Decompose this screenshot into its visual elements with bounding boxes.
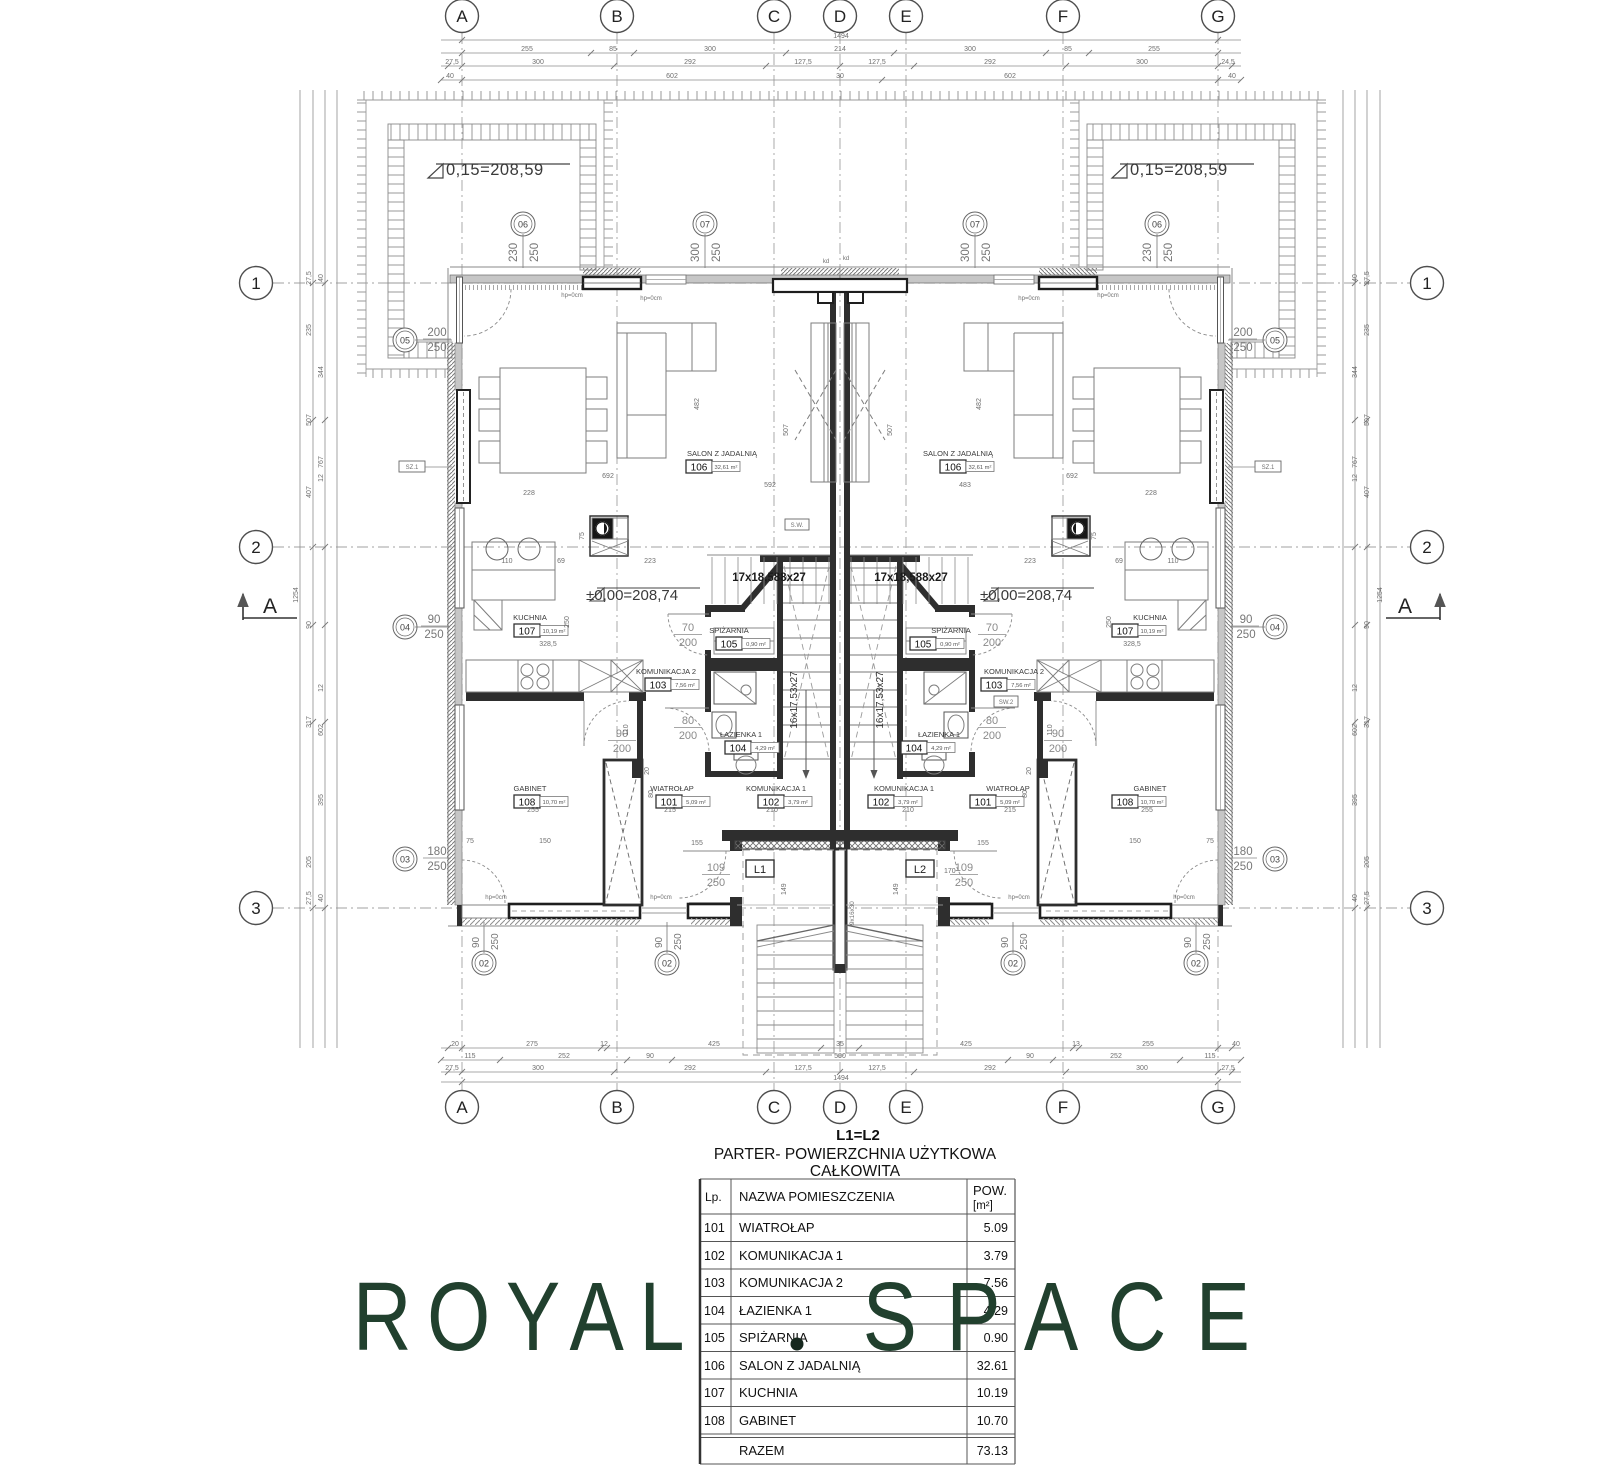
svg-text:255: 255 — [1142, 1041, 1154, 1048]
svg-text:155: 155 — [691, 840, 703, 847]
svg-text:250: 250 — [490, 933, 501, 950]
svg-text:4,29 m²: 4,29 m² — [931, 746, 951, 752]
svg-text:692: 692 — [1066, 473, 1078, 480]
svg-text:75: 75 — [466, 838, 474, 845]
svg-text:KOMUNIKACJA 2: KOMUNIKACJA 2 — [636, 667, 696, 676]
svg-text:10.19: 10.19 — [977, 1386, 1008, 1400]
svg-text:hp=0cm: hp=0cm — [561, 293, 583, 299]
svg-text:02: 02 — [1191, 959, 1201, 969]
svg-text:32,61 m²: 32,61 m² — [969, 465, 992, 471]
svg-text:292: 292 — [684, 1065, 696, 1072]
svg-text:180: 180 — [427, 846, 446, 858]
svg-text:B: B — [611, 7, 622, 26]
svg-text:10.70: 10.70 — [977, 1414, 1008, 1428]
svg-text:210: 210 — [766, 807, 778, 814]
svg-text:10,70 m²: 10,70 m² — [543, 800, 566, 806]
svg-text:250: 250 — [564, 616, 571, 628]
svg-text:1254: 1254 — [1377, 587, 1384, 603]
svg-text:200: 200 — [679, 730, 697, 742]
svg-text:±0,00=208,74: ±0,00=208,74 — [980, 587, 1072, 604]
svg-text:106: 106 — [704, 1359, 725, 1373]
svg-text:1494: 1494 — [833, 33, 849, 40]
svg-text:250: 250 — [1233, 342, 1252, 354]
svg-text:NAZWA POMIESZCZENIA: NAZWA POMIESZCZENIA — [739, 1189, 895, 1204]
svg-text:27,5: 27,5 — [445, 1065, 459, 1072]
svg-text:24,5: 24,5 — [1221, 59, 1235, 66]
svg-text:250: 250 — [1233, 861, 1252, 873]
svg-text:328,5: 328,5 — [539, 641, 557, 648]
svg-text:06: 06 — [518, 220, 528, 230]
svg-text:80: 80 — [682, 715, 694, 727]
svg-text:407: 407 — [306, 486, 313, 498]
svg-text:90: 90 — [646, 1053, 654, 1060]
svg-text:05: 05 — [1270, 336, 1280, 346]
svg-text:90: 90 — [654, 936, 665, 948]
svg-text:250: 250 — [981, 243, 993, 262]
svg-text:230: 230 — [508, 243, 520, 262]
svg-text:0,90 m²: 0,90 m² — [940, 642, 960, 648]
svg-text:KOMUNIKACJA 1: KOMUNIKACJA 1 — [746, 784, 806, 793]
svg-text:109: 109 — [707, 862, 725, 874]
svg-text:1: 1 — [251, 274, 260, 293]
svg-text:250: 250 — [955, 877, 973, 889]
svg-text:250: 250 — [1163, 243, 1175, 262]
svg-text:250: 250 — [673, 933, 684, 950]
svg-text:80: 80 — [986, 715, 998, 727]
svg-text:110: 110 — [501, 558, 512, 565]
svg-text:200: 200 — [983, 637, 1001, 649]
svg-text:107: 107 — [704, 1386, 725, 1400]
svg-text:3: 3 — [251, 899, 260, 918]
svg-text:292: 292 — [984, 59, 996, 66]
svg-text:149: 149 — [781, 883, 788, 895]
svg-text:250: 250 — [529, 243, 541, 262]
svg-text:03: 03 — [1270, 855, 1280, 865]
svg-text:1494: 1494 — [833, 1075, 849, 1082]
svg-text:L2: L2 — [914, 864, 926, 876]
svg-text:101: 101 — [975, 798, 992, 809]
svg-text:40: 40 — [1228, 73, 1236, 80]
svg-text:5,09 m²: 5,09 m² — [1000, 800, 1020, 806]
svg-text:SALON Z JADALNIĄ: SALON Z JADALNIĄ — [739, 1358, 861, 1373]
svg-text:16x17,53x27: 16x17,53x27 — [789, 671, 800, 729]
svg-text:3,79 m²: 3,79 m² — [898, 800, 918, 806]
svg-text:hp=0cm: hp=0cm — [650, 895, 672, 901]
svg-text:17x18,588x27: 17x18,588x27 — [874, 572, 948, 584]
svg-text:127,5: 127,5 — [868, 1065, 886, 1072]
svg-text:250: 250 — [1106, 616, 1113, 628]
svg-text:108: 108 — [704, 1414, 725, 1428]
svg-text:230: 230 — [1142, 243, 1154, 262]
svg-text:CAŁKOWITA: CAŁKOWITA — [810, 1163, 901, 1180]
svg-text:75: 75 — [1091, 532, 1098, 540]
svg-text:149: 149 — [893, 883, 900, 895]
svg-text:70: 70 — [682, 622, 694, 634]
svg-text:69: 69 — [557, 558, 565, 565]
svg-text:103: 103 — [650, 681, 667, 692]
svg-text:255: 255 — [1141, 807, 1153, 814]
svg-text:395: 395 — [318, 794, 325, 806]
svg-text:hp=0cm: hp=0cm — [1097, 293, 1119, 299]
svg-text:35: 35 — [836, 1041, 844, 1048]
svg-text:D: D — [834, 1098, 846, 1117]
svg-text:hp=0cm: hp=0cm — [1173, 895, 1195, 901]
svg-text:27,5: 27,5 — [1221, 1065, 1235, 1072]
svg-text:27,5: 27,5 — [1364, 891, 1371, 905]
svg-text:200: 200 — [613, 743, 631, 755]
svg-text:252: 252 — [1110, 1053, 1122, 1060]
svg-text:A: A — [456, 7, 468, 26]
svg-text:SPIŻARNIA: SPIŻARNIA — [931, 626, 971, 635]
svg-text:ŁAZIENKA 1: ŁAZIENKA 1 — [739, 1303, 812, 1318]
svg-text:GABINET: GABINET — [514, 784, 547, 793]
svg-text:40: 40 — [1352, 894, 1359, 902]
svg-text:B: B — [611, 1098, 622, 1117]
svg-text:hp=0cm: hp=0cm — [640, 296, 662, 302]
svg-text:90: 90 — [1183, 936, 1194, 948]
svg-text:250: 250 — [1019, 933, 1030, 950]
svg-text:40: 40 — [318, 894, 325, 902]
svg-text:KUCHNIA: KUCHNIA — [513, 613, 547, 622]
svg-text:04: 04 — [400, 623, 410, 633]
svg-text:27,5: 27,5 — [306, 271, 313, 285]
svg-text:102: 102 — [873, 798, 890, 809]
svg-text:105: 105 — [704, 1331, 725, 1345]
svg-text:483: 483 — [959, 482, 971, 489]
svg-text:12: 12 — [1352, 684, 1359, 692]
svg-text:73.13: 73.13 — [977, 1444, 1008, 1458]
svg-text:17x18,588x27: 17x18,588x27 — [732, 572, 806, 584]
svg-text:40: 40 — [1352, 274, 1359, 282]
svg-text:344: 344 — [318, 366, 325, 378]
svg-text:107: 107 — [519, 627, 536, 638]
svg-text:GABINET: GABINET — [1134, 784, 1167, 793]
svg-text:KOMUNIKACJA 2: KOMUNIKACJA 2 — [739, 1275, 843, 1290]
svg-text:3: 3 — [1422, 899, 1431, 918]
svg-text:104: 104 — [906, 744, 923, 755]
svg-text:85: 85 — [1064, 46, 1072, 53]
svg-text:ŁAZIENKA 1: ŁAZIENKA 1 — [720, 730, 762, 739]
svg-text:104: 104 — [730, 744, 747, 755]
svg-text:Lp.: Lp. — [705, 1190, 722, 1204]
svg-text:106: 106 — [691, 463, 708, 474]
svg-text:602: 602 — [1352, 724, 1359, 736]
svg-text:9x16x30: 9x16x30 — [849, 901, 856, 925]
svg-text:hp=0cm: hp=0cm — [1008, 895, 1030, 901]
svg-text:482: 482 — [694, 398, 701, 410]
svg-text:1254: 1254 — [293, 587, 300, 603]
svg-text:602: 602 — [318, 724, 325, 736]
svg-text:SALON Z JADALNIĄ: SALON Z JADALNIĄ — [687, 449, 758, 458]
svg-text:602: 602 — [666, 73, 678, 80]
svg-text:12: 12 — [318, 684, 325, 692]
svg-text:40: 40 — [1232, 1041, 1240, 1048]
svg-text:300: 300 — [532, 1065, 544, 1072]
svg-text:90: 90 — [1240, 614, 1253, 626]
svg-text:20: 20 — [1026, 767, 1033, 775]
svg-text:hp=0cm: hp=0cm — [485, 895, 507, 901]
svg-text:115: 115 — [464, 1053, 475, 1060]
svg-text:10,70 m²: 10,70 m² — [1141, 800, 1164, 806]
svg-text:02: 02 — [479, 959, 489, 969]
svg-text:215: 215 — [1004, 807, 1016, 814]
svg-text:E: E — [900, 7, 911, 26]
svg-text:235: 235 — [1364, 324, 1371, 336]
svg-text:102: 102 — [704, 1249, 725, 1263]
svg-text:5,09 m²: 5,09 m² — [686, 800, 706, 806]
svg-text:F: F — [1058, 7, 1068, 26]
svg-text:205: 205 — [306, 856, 313, 868]
svg-text:250: 250 — [707, 877, 725, 889]
svg-text:127,5: 127,5 — [794, 1065, 812, 1072]
svg-text:292: 292 — [684, 59, 696, 66]
svg-text:300: 300 — [704, 46, 716, 53]
svg-text:250: 250 — [427, 342, 446, 354]
svg-text:G: G — [1211, 1098, 1224, 1117]
svg-text:75: 75 — [579, 532, 586, 540]
svg-text:90: 90 — [306, 621, 313, 629]
svg-text:200: 200 — [679, 637, 697, 649]
svg-text:150: 150 — [1129, 838, 1141, 845]
svg-text:KOMUNIKACJA 2: KOMUNIKACJA 2 — [984, 667, 1044, 676]
svg-text:228: 228 — [1145, 490, 1157, 497]
svg-text:A: A — [456, 1098, 468, 1117]
svg-text:90: 90 — [1000, 936, 1011, 948]
svg-text:40: 40 — [446, 73, 454, 80]
svg-text:SALON Z JADALNIĄ: SALON Z JADALNIĄ — [923, 449, 994, 458]
svg-text:200: 200 — [427, 327, 446, 339]
svg-text:75: 75 — [1206, 838, 1214, 845]
svg-text:7,56 m²: 7,56 m² — [675, 683, 695, 689]
svg-text:85: 85 — [609, 46, 617, 53]
svg-text:20: 20 — [644, 767, 651, 775]
svg-text:104: 104 — [704, 1304, 725, 1318]
svg-text:1: 1 — [1422, 274, 1431, 293]
svg-text:SPIŻARNIA: SPIŻARNIA — [709, 626, 749, 635]
svg-text:300: 300 — [1136, 59, 1148, 66]
svg-text:395: 395 — [1352, 794, 1359, 806]
svg-text:KOMUNIKACJA 1: KOMUNIKACJA 1 — [739, 1248, 843, 1263]
svg-text:WIATROŁAP: WIATROŁAP — [739, 1220, 815, 1235]
svg-text:223: 223 — [644, 558, 656, 565]
svg-text:328,5: 328,5 — [1123, 641, 1141, 648]
svg-text:580: 580 — [834, 1053, 846, 1060]
svg-text:07: 07 — [700, 220, 710, 230]
svg-text:SW.2: SW.2 — [999, 700, 1014, 706]
svg-text:kd: kd — [843, 256, 849, 262]
svg-text:507: 507 — [306, 414, 313, 426]
svg-text:hp=0cm: hp=0cm — [1018, 296, 1040, 302]
svg-text:482: 482 — [976, 398, 983, 410]
svg-text:69: 69 — [1115, 558, 1123, 565]
svg-text:105: 105 — [721, 640, 738, 651]
svg-text:7,56 m²: 7,56 m² — [1011, 683, 1031, 689]
svg-text:27,5: 27,5 — [306, 891, 313, 905]
svg-text:KUCHNIA: KUCHNIA — [1133, 613, 1167, 622]
svg-text:12: 12 — [600, 1041, 608, 1048]
svg-text:767: 767 — [318, 456, 325, 468]
svg-text:300: 300 — [964, 46, 976, 53]
svg-text:250: 250 — [1202, 933, 1213, 950]
svg-text:0,15=208,59: 0,15=208,59 — [1130, 161, 1228, 179]
svg-text:407: 407 — [1364, 486, 1371, 498]
svg-text:0,90 m²: 0,90 m² — [746, 642, 766, 648]
svg-text:127,5: 127,5 — [794, 59, 812, 66]
svg-text:WIATROŁAP: WIATROŁAP — [650, 784, 694, 793]
svg-text:3,79 m²: 3,79 m² — [788, 800, 808, 806]
svg-text:05: 05 — [400, 336, 410, 346]
svg-text:12: 12 — [1352, 474, 1359, 482]
svg-text:10,19 m²: 10,19 m² — [543, 629, 566, 635]
svg-text:SZ.1: SZ.1 — [406, 465, 419, 471]
svg-text:250: 250 — [1236, 629, 1255, 641]
svg-text:110: 110 — [1167, 558, 1178, 565]
svg-text:250: 250 — [711, 243, 723, 262]
svg-text:214: 214 — [834, 46, 846, 53]
svg-text:200: 200 — [1049, 743, 1067, 755]
svg-text:10,19 m²: 10,19 m² — [1141, 629, 1164, 635]
svg-text:109: 109 — [955, 862, 973, 874]
svg-text:200: 200 — [1233, 327, 1252, 339]
svg-text:3.79: 3.79 — [984, 1249, 1008, 1263]
svg-text:215: 215 — [664, 807, 676, 814]
svg-text:A: A — [1398, 595, 1412, 618]
svg-text:105: 105 — [915, 640, 932, 651]
svg-text:115: 115 — [1204, 1053, 1215, 1060]
svg-text:80: 80 — [648, 790, 655, 798]
svg-text:108: 108 — [1117, 798, 1134, 809]
svg-text:20: 20 — [451, 1041, 459, 1048]
svg-text:235: 235 — [306, 324, 313, 336]
svg-text:12: 12 — [318, 474, 325, 482]
svg-text:04: 04 — [1270, 623, 1280, 633]
svg-text:ŁAZIENKA 1: ŁAZIENKA 1 — [918, 730, 960, 739]
svg-text:101: 101 — [704, 1221, 725, 1235]
svg-text:POW.: POW. — [973, 1183, 1007, 1198]
svg-text:250: 250 — [427, 861, 446, 873]
svg-text:692: 692 — [602, 473, 614, 480]
svg-text:KUCHNIA: KUCHNIA — [739, 1385, 798, 1400]
svg-text:250: 250 — [424, 629, 443, 641]
svg-text:300: 300 — [960, 243, 972, 262]
svg-text:D: D — [834, 7, 846, 26]
svg-text:255: 255 — [521, 46, 533, 53]
svg-text:255: 255 — [527, 807, 539, 814]
svg-text:425: 425 — [708, 1041, 720, 1048]
svg-text:90: 90 — [428, 614, 441, 626]
svg-text:228: 228 — [523, 490, 535, 497]
svg-text:PARTER- POWIERZCHNIA UŻYTKOWA: PARTER- POWIERZCHNIA UŻYTKOWA — [714, 1145, 997, 1163]
svg-text:344: 344 — [1352, 366, 1359, 378]
svg-text:GABINET: GABINET — [739, 1413, 796, 1428]
svg-text:103: 103 — [986, 681, 1003, 692]
svg-text:80: 80 — [1022, 790, 1029, 798]
svg-text:300: 300 — [690, 243, 702, 262]
svg-text:110: 110 — [1047, 724, 1054, 735]
svg-text:592: 592 — [764, 482, 776, 489]
svg-text:70: 70 — [986, 622, 998, 634]
svg-text:4,29 m²: 4,29 m² — [755, 746, 775, 752]
svg-text:C: C — [768, 1098, 780, 1117]
svg-text:90: 90 — [471, 936, 482, 948]
svg-text:90: 90 — [1026, 1053, 1034, 1060]
svg-text:±0,00=208,74: ±0,00=208,74 — [586, 587, 678, 604]
svg-text:E: E — [900, 1098, 911, 1117]
svg-text:02: 02 — [1008, 959, 1018, 969]
svg-text:255: 255 — [1148, 46, 1160, 53]
svg-text:180: 180 — [1233, 846, 1252, 858]
svg-text:kd: kd — [823, 259, 829, 265]
svg-text:150: 150 — [539, 838, 551, 845]
svg-text:32,61 m²: 32,61 m² — [715, 465, 738, 471]
svg-text:27,5: 27,5 — [445, 59, 459, 66]
svg-text:[m²]: [m²] — [973, 1200, 993, 1212]
svg-text:210: 210 — [902, 807, 914, 814]
svg-text:205: 205 — [1364, 856, 1371, 868]
svg-text:02: 02 — [662, 959, 672, 969]
svg-text:200: 200 — [983, 730, 1001, 742]
svg-text:292: 292 — [984, 1065, 996, 1072]
svg-text:127,5: 127,5 — [868, 59, 886, 66]
svg-text:30: 30 — [836, 73, 844, 80]
svg-text:06: 06 — [1152, 220, 1162, 230]
svg-text:S.W.: S.W. — [791, 523, 804, 529]
svg-text:RAZEM: RAZEM — [739, 1443, 785, 1458]
svg-text:F: F — [1058, 1098, 1068, 1117]
svg-text:KOMUNIKACJA 1: KOMUNIKACJA 1 — [874, 784, 934, 793]
svg-text:106: 106 — [945, 463, 962, 474]
svg-text:275: 275 — [526, 1041, 538, 1048]
svg-text:C: C — [768, 7, 780, 26]
svg-text:2: 2 — [251, 538, 260, 557]
svg-text:0,15=208,59: 0,15=208,59 — [446, 161, 544, 179]
svg-text:A: A — [263, 595, 277, 618]
svg-text:425: 425 — [960, 1041, 972, 1048]
svg-text:507: 507 — [783, 424, 790, 436]
svg-text:03: 03 — [400, 855, 410, 865]
svg-text:07: 07 — [970, 220, 980, 230]
svg-text:5.09: 5.09 — [984, 1221, 1008, 1235]
svg-text:16x17,53x27: 16x17,53x27 — [875, 671, 886, 729]
svg-text:602: 602 — [1004, 73, 1016, 80]
svg-text:G: G — [1211, 7, 1224, 26]
svg-text:L1=L2: L1=L2 — [836, 1127, 880, 1144]
svg-text:107: 107 — [1117, 627, 1134, 638]
svg-text:2: 2 — [1422, 538, 1431, 557]
svg-text:L1: L1 — [754, 864, 766, 876]
svg-text:223: 223 — [1024, 558, 1036, 565]
svg-text:300: 300 — [532, 59, 544, 66]
svg-text:507: 507 — [887, 424, 894, 436]
svg-text:767: 767 — [1352, 456, 1359, 468]
svg-text:SZ.1: SZ.1 — [1262, 465, 1275, 471]
svg-text:110: 110 — [623, 724, 630, 735]
svg-text:300: 300 — [1136, 1065, 1148, 1072]
svg-text:155: 155 — [977, 840, 989, 847]
svg-text:40: 40 — [318, 274, 325, 282]
svg-text:103: 103 — [704, 1276, 725, 1290]
svg-text:317: 317 — [306, 716, 313, 728]
svg-text:13: 13 — [1072, 1041, 1080, 1048]
svg-text:252: 252 — [558, 1053, 570, 1060]
